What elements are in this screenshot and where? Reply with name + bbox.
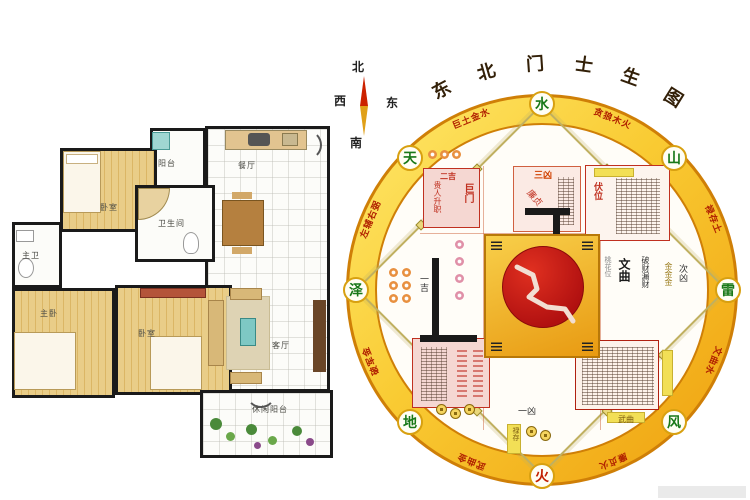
trigram-node-fire: 火 [529, 463, 555, 489]
inner-wall [525, 208, 570, 215]
toilet-mid [183, 232, 199, 254]
wheel-title-char: 东 [427, 73, 455, 104]
center-red-disc [502, 246, 584, 328]
bed-master [14, 332, 76, 390]
node-char: 地 [403, 412, 417, 432]
inner-wall [553, 210, 560, 237]
wheel-title-char: 门 [525, 49, 545, 76]
room-label: 卧室 [138, 328, 156, 339]
room-label: 阳台 [158, 158, 176, 169]
sector-box-southwest [412, 338, 490, 408]
sector-box-northwest: 二吉 巨门 贵人升职 [423, 168, 480, 228]
room-label: 主卫 [22, 250, 40, 261]
trigram-node-mountain: 山 [661, 145, 687, 171]
bed-bottom [150, 336, 202, 390]
fine-text-block [616, 178, 660, 234]
trigram-node-earth: 地 [397, 409, 423, 435]
trigram-mark-icon [582, 342, 593, 351]
highlight-strip [594, 168, 634, 177]
blossom-icon [389, 268, 398, 277]
wheel-title-char: 士 [573, 50, 594, 78]
fengshui-floorplan-image: 阳台 卧室 卫生间 主卫 主卧 卧室 餐厅 客厅 休闲阳台 北 西 东 南 东 … [0, 0, 750, 500]
sofa [208, 300, 224, 366]
center-bagua-plate [484, 234, 600, 358]
star-label: 巨门 [460, 183, 475, 203]
sector-rank-label: 次凶 [677, 264, 690, 282]
dining-chair [232, 247, 252, 254]
toilet-left [18, 258, 34, 278]
coin-icon [540, 430, 551, 441]
flower-icon [306, 438, 314, 446]
star-label: 廉贞 [524, 186, 546, 208]
blossom-icon [455, 274, 464, 283]
blossom-icon [455, 257, 464, 266]
blossom-icon [428, 150, 437, 159]
room-label: 休闲阳台 [252, 404, 288, 415]
blossom-icon [452, 150, 461, 159]
room-label: 主卧 [40, 308, 58, 319]
blossom-icon [402, 281, 411, 290]
node-char: 泽 [349, 280, 363, 300]
star-label: 禄存 [510, 427, 520, 441]
blossom-icon [389, 281, 398, 290]
sector-note-label: 桃花位 [602, 256, 612, 277]
coffee-table [240, 318, 256, 346]
stove [248, 133, 270, 146]
coin-icon [450, 408, 461, 419]
node-char: 水 [535, 94, 549, 114]
blossom-icon [455, 291, 464, 300]
compass-needle-north-icon [360, 76, 368, 106]
blossom-icon [455, 240, 464, 249]
highlight-strip [662, 350, 673, 396]
entry-door-arc [292, 130, 322, 160]
star-label: 文曲 [616, 258, 633, 282]
sector-rank-label: 一吉 [418, 274, 431, 292]
node-char: 风 [667, 412, 681, 432]
inner-wall [420, 335, 477, 342]
fine-text-block [421, 347, 447, 401]
room-label: 客厅 [272, 340, 290, 351]
armchair [230, 288, 262, 300]
highlight-strip: 禄存 [507, 424, 521, 454]
blossom-icon [402, 294, 411, 303]
plant-icon [210, 418, 222, 430]
trigram-node-heaven: 天 [397, 145, 423, 171]
dining-chair [232, 192, 252, 199]
wheel-title-char: 生 [618, 61, 644, 92]
wardrobe-bottom [140, 288, 206, 298]
fine-text-block [473, 347, 483, 397]
sector-box-north: 三凶 廉贞 [513, 166, 581, 232]
dining-table [222, 200, 264, 246]
compass-south-label: 南 [350, 134, 362, 151]
compass-east-label: 东 [386, 94, 398, 111]
sink-left [16, 230, 34, 242]
node-char: 山 [667, 148, 681, 168]
watermark [658, 486, 746, 498]
plant-icon [246, 424, 257, 435]
node-char: 火 [535, 466, 549, 486]
flower-icon [254, 442, 261, 449]
trigram-node-wind: 风 [661, 409, 687, 435]
trigram-node-lake: 泽 [343, 277, 369, 303]
room-label: 卧室 [100, 202, 118, 213]
blossom-icon [440, 150, 449, 159]
blossom-row [428, 150, 461, 159]
fine-text-block [457, 347, 467, 397]
pillow [66, 154, 98, 164]
coin-icon [464, 404, 475, 415]
sector-note-label: 破财漏财 [640, 256, 651, 288]
sector-rank-label: 一凶 [518, 404, 536, 417]
compass-west-label: 西 [334, 92, 346, 109]
room-label: 餐厅 [238, 160, 256, 171]
inner-wall [432, 258, 439, 335]
plant-icon [292, 426, 302, 436]
zigzag-path-icon [503, 247, 585, 329]
plant-icon [226, 432, 235, 441]
sector-note-label: 贵人升职 [432, 181, 443, 213]
coin-icon [436, 404, 447, 415]
trigram-node-thunder: 雷 [715, 277, 741, 303]
room-label: 卫生间 [158, 218, 185, 229]
sector-rank-label: 三凶 [534, 168, 552, 181]
blossom-icon [402, 268, 411, 277]
node-char: 雷 [721, 280, 735, 300]
plant-icon [268, 436, 277, 445]
compass-needle-south-icon [360, 106, 368, 136]
trigram-mark-icon [582, 241, 593, 250]
star-label: 武曲 [618, 414, 634, 425]
trigram-node-water: 水 [529, 91, 555, 117]
blossom-icon [389, 294, 398, 303]
compass-north-label: 北 [352, 58, 364, 75]
fine-text-block [558, 177, 574, 225]
blossom-column [455, 240, 464, 300]
trigram-mark-icon [491, 342, 502, 351]
star-label: 伏位 [592, 182, 605, 200]
sector-box-northeast: 伏位 [585, 165, 670, 241]
wheel-title-char: 北 [474, 56, 498, 86]
washing-machine [152, 132, 170, 150]
trigram-mark-icon [491, 241, 502, 250]
blossom-grid [389, 268, 411, 303]
wheel-title-char: 图 [659, 81, 688, 113]
tv-cabinet [313, 300, 326, 372]
node-char: 天 [403, 148, 417, 168]
highlight-strip: 武曲 [607, 412, 645, 423]
coin-icon [526, 426, 537, 437]
sector-note-label: 金金金 [663, 262, 674, 286]
